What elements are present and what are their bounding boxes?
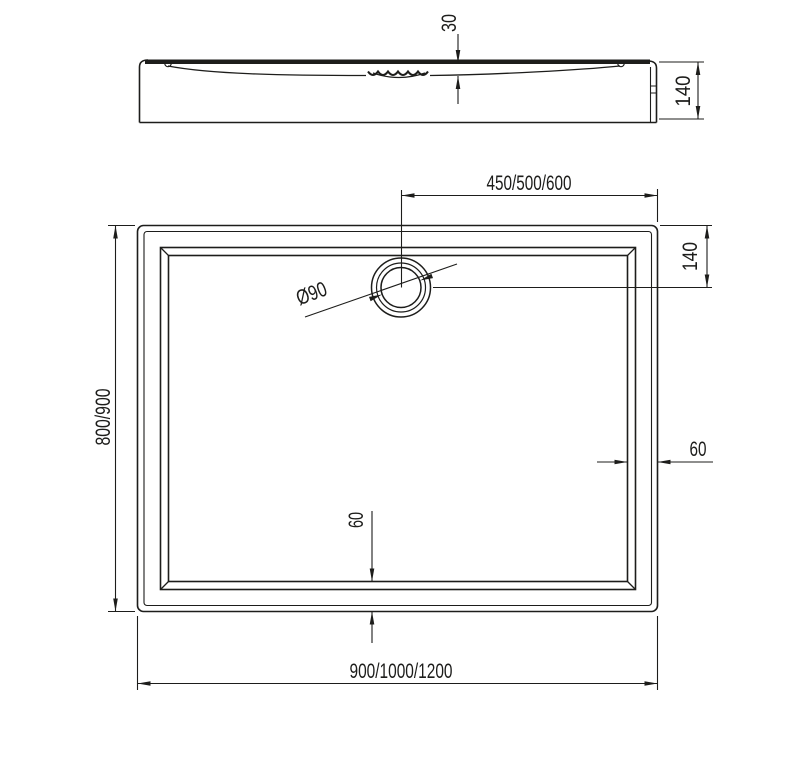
plan-rim-inner (169, 256, 628, 582)
side-view-left-wall (140, 60, 149, 123)
arrowhead-450-left (402, 193, 415, 198)
label-length-options: 900/1000/1200 (350, 660, 453, 683)
arrowhead-140plan-top (705, 226, 710, 239)
plan-outer-edge (138, 226, 658, 612)
filled-shapes (113, 50, 709, 686)
side-view-wall-notch (651, 86, 657, 93)
arrowhead-450-right (645, 193, 658, 198)
label-width-options: 800/900 (92, 389, 115, 446)
plan-rim-outer (161, 248, 636, 590)
line-work (108, 34, 713, 690)
arrowhead-140side-bottom (696, 106, 701, 119)
arrowhead-60bottom-up (370, 612, 375, 625)
arrowhead-30-up (456, 76, 461, 89)
arrowhead-800-top (113, 226, 118, 239)
label-rim-width-right: 60 (690, 438, 707, 461)
arrowhead-140plan-bottom (705, 275, 710, 288)
shower-tray-technical-drawing: 30 140 450/500/600 140 Ø90 800/900 60 60… (0, 0, 792, 769)
label-drain-diameter: Ø90 (293, 278, 330, 311)
plan-view (138, 226, 658, 612)
arrowhead-60right-out (658, 460, 671, 465)
arrowhead-900-right (645, 681, 658, 686)
drawing-canvas: 30 140 450/500/600 140 Ø90 800/900 60 60… (0, 0, 792, 769)
side-view-top-rim-band (145, 60, 650, 65)
side-view (140, 60, 657, 123)
label-depth-30: 30 (438, 14, 461, 32)
label-rim-width-bottom: 60 (345, 512, 368, 528)
arrowhead-60bottom-down (370, 569, 375, 582)
arrowhead-800-bottom (113, 599, 118, 612)
label-drain-offset-vertical: 140 (679, 242, 702, 271)
label-height-140: 140 (672, 76, 695, 107)
plan-rim-corner-miters (161, 248, 636, 590)
arrowhead-60right-in (615, 460, 628, 465)
arrowhead-140side-top (696, 62, 701, 75)
arrowhead-900-left (138, 681, 151, 686)
dim-drain-offset-vertical (433, 226, 712, 288)
side-view-right-wall-outer (648, 61, 657, 123)
dim-drain-offset-horizontal (402, 189, 658, 288)
label-drain-offset-horizontal: 450/500/600 (487, 172, 572, 195)
dimension-labels: 30 140 450/500/600 140 Ø90 800/900 60 60… (92, 14, 707, 683)
